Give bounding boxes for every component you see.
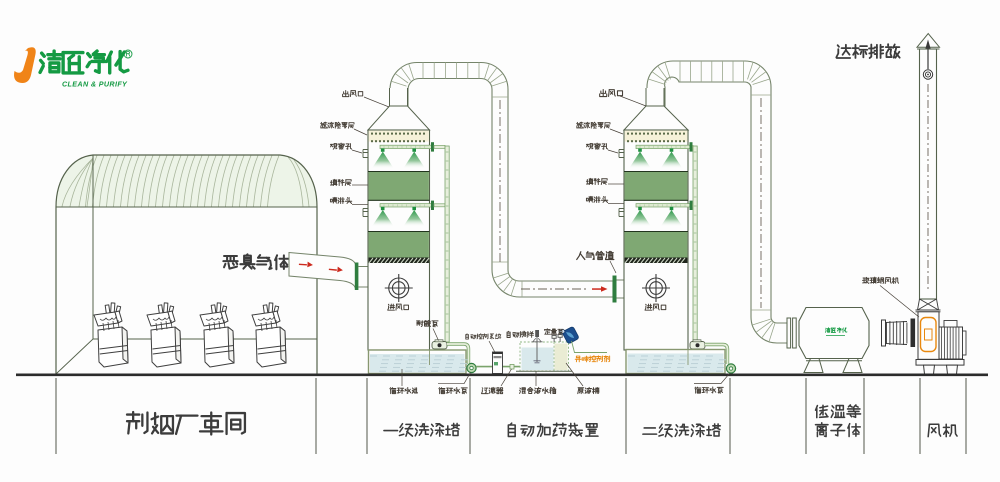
svg-text:CLEAN & PURIFY: CLEAN & PURIFY <box>62 80 128 89</box>
